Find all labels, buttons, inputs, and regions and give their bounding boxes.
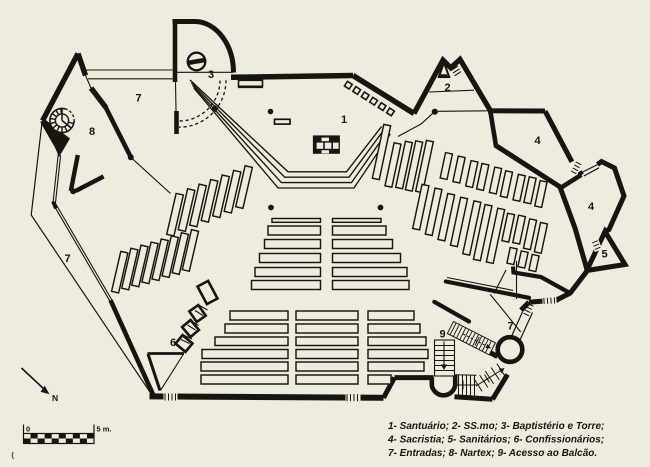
svg-text:5 m.: 5 m. xyxy=(97,425,112,434)
svg-text:3: 3 xyxy=(208,69,214,81)
svg-text:1: 1 xyxy=(341,114,347,126)
svg-text:1- Santuário; 2- SS.mo; 3- Bap: 1- Santuário; 2- SS.mo; 3- Baptistério e… xyxy=(388,421,604,432)
svg-text:2: 2 xyxy=(445,82,451,94)
svg-text:9: 9 xyxy=(440,329,446,341)
svg-text:6: 6 xyxy=(170,337,176,349)
svg-text:4: 4 xyxy=(535,135,542,147)
svg-text:7- Entradas; 8- Nartex; 9- Ace: 7- Entradas; 8- Nartex; 9- Acesso ao Bal… xyxy=(388,448,597,459)
svg-text:4- Sacristia; 5- Sanitários; 6: 4- Sacristia; 5- Sanitários; 6- Confissi… xyxy=(387,435,604,446)
svg-text:0: 0 xyxy=(26,425,30,434)
svg-text:4: 4 xyxy=(588,201,595,213)
svg-text:5: 5 xyxy=(602,249,608,261)
svg-text:7: 7 xyxy=(508,321,514,333)
svg-text:N: N xyxy=(52,393,58,403)
svg-text:7: 7 xyxy=(136,93,142,105)
svg-text:7: 7 xyxy=(65,253,71,265)
svg-text:8: 8 xyxy=(89,126,95,138)
